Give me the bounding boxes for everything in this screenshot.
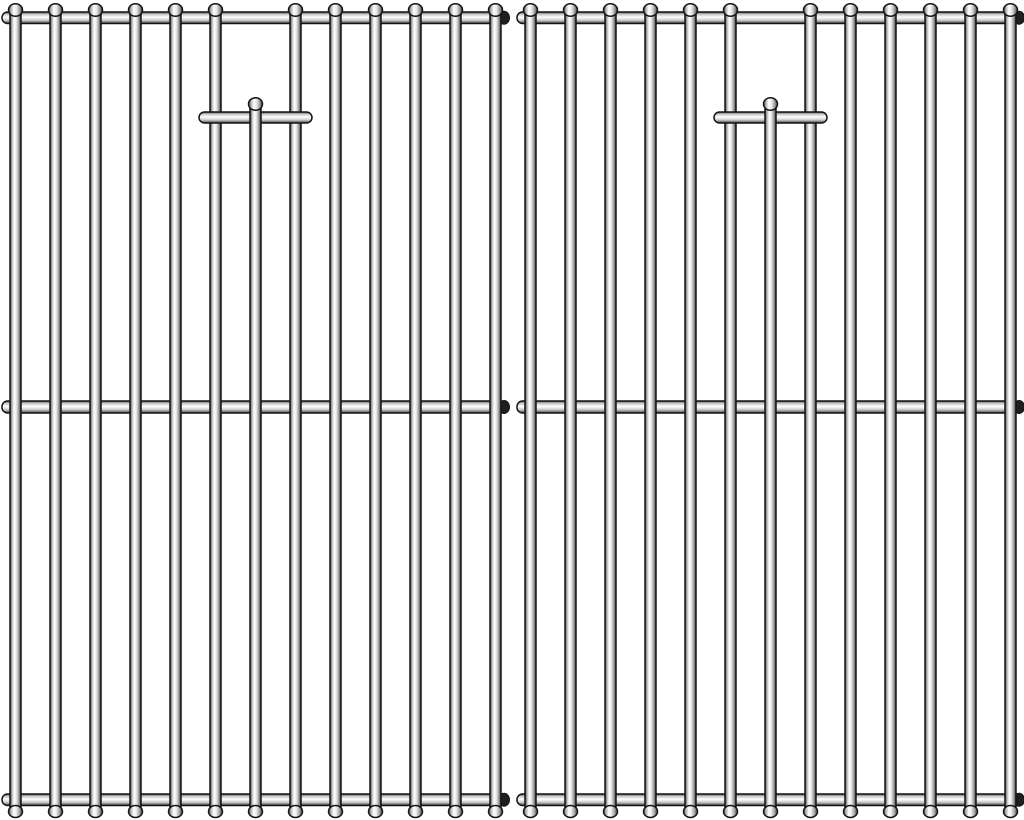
rod-5-bottom-cap — [169, 806, 183, 818]
rod-9-bottom-cap — [329, 806, 343, 818]
rod-8-top-cap — [289, 4, 303, 16]
rod-11-top-cap — [924, 4, 938, 16]
rod-12 — [450, 4, 461, 817]
rod-13-bottom-cap — [1004, 806, 1018, 818]
rod-2-top-cap — [564, 4, 578, 16]
rod-6-top-cap — [209, 4, 223, 16]
rod-3 — [90, 4, 101, 817]
rod-9-top-cap — [329, 4, 343, 16]
rod-13-bottom-cap — [489, 806, 503, 818]
rod-1-bottom-cap — [524, 806, 538, 818]
rod-10 — [370, 4, 381, 817]
rod-4 — [645, 4, 656, 817]
rod-1-bottom-cap — [9, 806, 23, 818]
rod-2-bottom-cap — [49, 806, 63, 818]
rod-8-bottom-cap — [804, 806, 818, 818]
rod-4-bottom-cap — [129, 806, 143, 818]
rod-12-top-cap — [964, 4, 978, 16]
rod-9 — [330, 4, 341, 817]
rod-12 — [965, 4, 976, 817]
rod-9 — [845, 4, 856, 817]
grill-grates-illustration — [0, 0, 1024, 820]
crossbar-1 — [2, 12, 504, 24]
rod-10-top-cap — [369, 4, 383, 16]
rod-1 — [10, 4, 21, 817]
rod-3-top-cap — [604, 4, 618, 16]
rod-4-top-cap — [644, 4, 658, 16]
short-rod-bottom-cap — [764, 806, 778, 818]
rod-5-bottom-cap — [684, 806, 698, 818]
short-rod-top-cap — [249, 98, 263, 110]
rod-11-top-cap — [409, 4, 423, 16]
short-rod — [765, 98, 776, 817]
rod-10-top-cap — [884, 4, 898, 16]
rod-13 — [490, 4, 501, 817]
rod-1 — [525, 4, 536, 817]
rod-4 — [130, 4, 141, 817]
rod-11-bottom-cap — [409, 806, 423, 818]
rod-12-bottom-cap — [449, 806, 463, 818]
rod-5 — [685, 4, 696, 817]
rod-5 — [170, 4, 181, 817]
rod-2 — [50, 4, 61, 817]
rod-2-bottom-cap — [564, 806, 578, 818]
rod-2-top-cap — [49, 4, 63, 16]
rod-1-top-cap — [524, 4, 538, 16]
rod-9-top-cap — [844, 4, 858, 16]
rod-6-top-cap — [724, 4, 738, 16]
rod-3-bottom-cap — [89, 806, 103, 818]
rod-3-top-cap — [89, 4, 103, 16]
rod-3-bottom-cap — [604, 806, 618, 818]
rod-12-top-cap — [449, 4, 463, 16]
short-rod-bottom-cap — [249, 806, 263, 818]
rod-13 — [1005, 4, 1016, 817]
rod-6-bottom-cap — [209, 806, 223, 818]
rod-1-top-cap — [9, 4, 23, 16]
rod-10-bottom-cap — [369, 806, 383, 818]
rod-4-bottom-cap — [644, 806, 658, 818]
rod-5-top-cap — [684, 4, 698, 16]
rod-8-bottom-cap — [289, 806, 303, 818]
rod-6 — [210, 4, 221, 817]
rod-8 — [290, 4, 301, 817]
product-image — [0, 0, 1024, 820]
rod-12-bottom-cap — [964, 806, 978, 818]
rod-10 — [885, 4, 896, 817]
rod-3 — [605, 4, 616, 817]
rod-11 — [410, 4, 421, 817]
rod-6-bottom-cap — [724, 806, 738, 818]
rod-6 — [725, 4, 736, 817]
rod-4-top-cap — [129, 4, 143, 16]
rod-8 — [805, 4, 816, 817]
crossbar-1 — [517, 12, 1019, 24]
short-rod-top-cap — [764, 98, 778, 110]
rod-11 — [925, 4, 936, 817]
rod-8-top-cap — [804, 4, 818, 16]
rod-9-bottom-cap — [844, 806, 858, 818]
rod-10-bottom-cap — [884, 806, 898, 818]
rod-2 — [565, 4, 576, 817]
rod-13-top-cap — [1004, 4, 1018, 16]
rod-5-top-cap — [169, 4, 183, 16]
rod-13-top-cap — [489, 4, 503, 16]
short-rod — [250, 98, 261, 817]
rod-11-bottom-cap — [924, 806, 938, 818]
